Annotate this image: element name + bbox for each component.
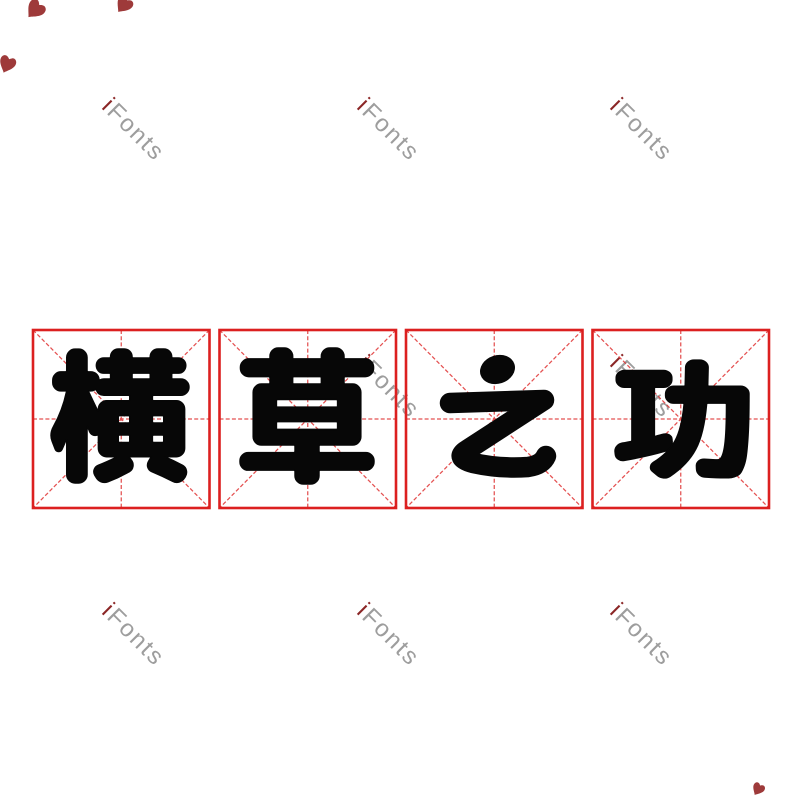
svg-text:iFonts: iFonts bbox=[604, 93, 678, 167]
svg-text:iFonts: iFonts bbox=[96, 93, 170, 167]
svg-text:iFonts: iFonts bbox=[351, 598, 425, 672]
svg-text:iFonts: iFonts bbox=[96, 598, 170, 672]
svg-text:iFonts: iFonts bbox=[604, 598, 678, 672]
svg-text:iFonts: iFonts bbox=[351, 93, 425, 167]
